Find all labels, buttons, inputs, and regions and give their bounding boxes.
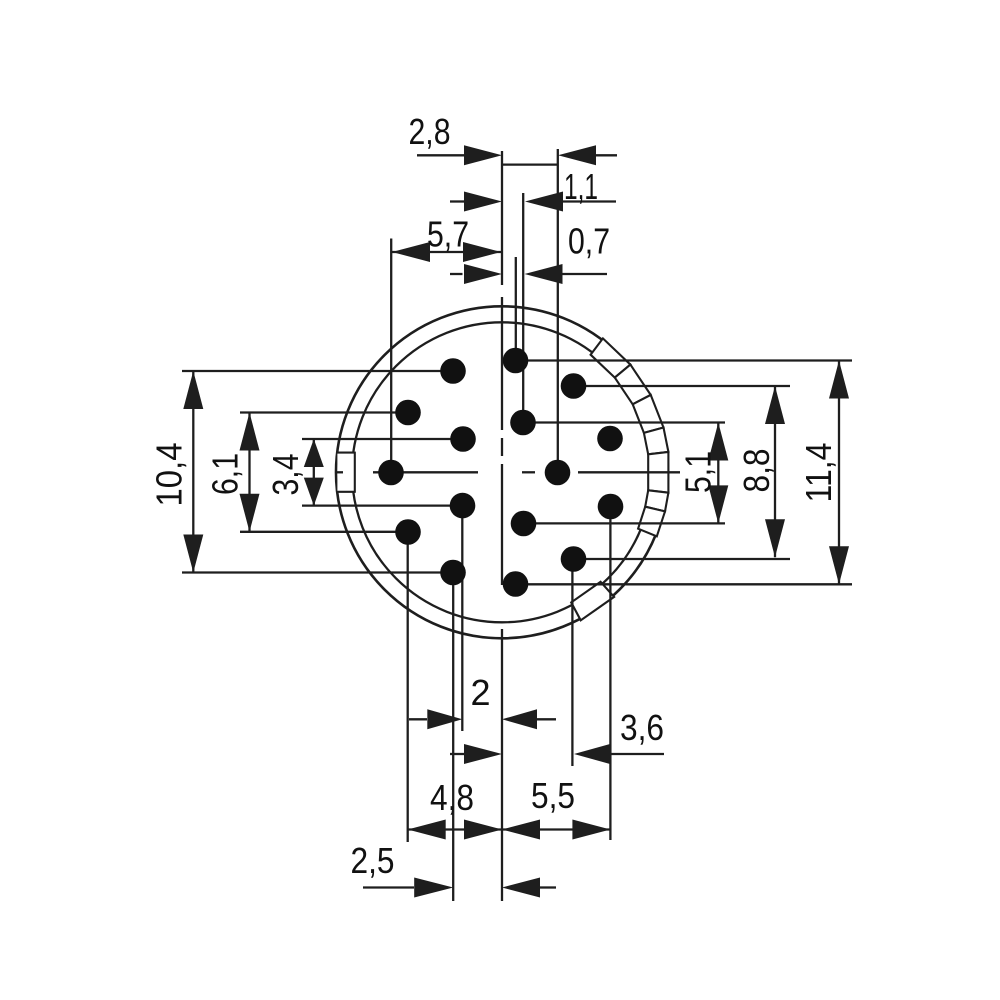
svg-text:2,5: 2,5 xyxy=(351,840,395,881)
svg-text:5,7: 5,7 xyxy=(427,214,469,255)
svg-text:1,1: 1,1 xyxy=(564,166,598,207)
svg-text:5,5: 5,5 xyxy=(531,775,575,816)
svg-text:5,1: 5,1 xyxy=(678,451,719,493)
svg-text:6,1: 6,1 xyxy=(205,453,246,495)
svg-text:2: 2 xyxy=(470,672,490,713)
svg-text:0,7: 0,7 xyxy=(568,221,610,262)
svg-text:3,6: 3,6 xyxy=(620,707,664,748)
svg-text:3,4: 3,4 xyxy=(265,454,306,496)
svg-text:4,8: 4,8 xyxy=(430,777,474,818)
svg-text:10,4: 10,4 xyxy=(149,443,190,507)
svg-text:11,4: 11,4 xyxy=(798,443,839,503)
svg-text:8,8: 8,8 xyxy=(736,449,777,493)
svg-text:2,8: 2,8 xyxy=(409,111,451,152)
